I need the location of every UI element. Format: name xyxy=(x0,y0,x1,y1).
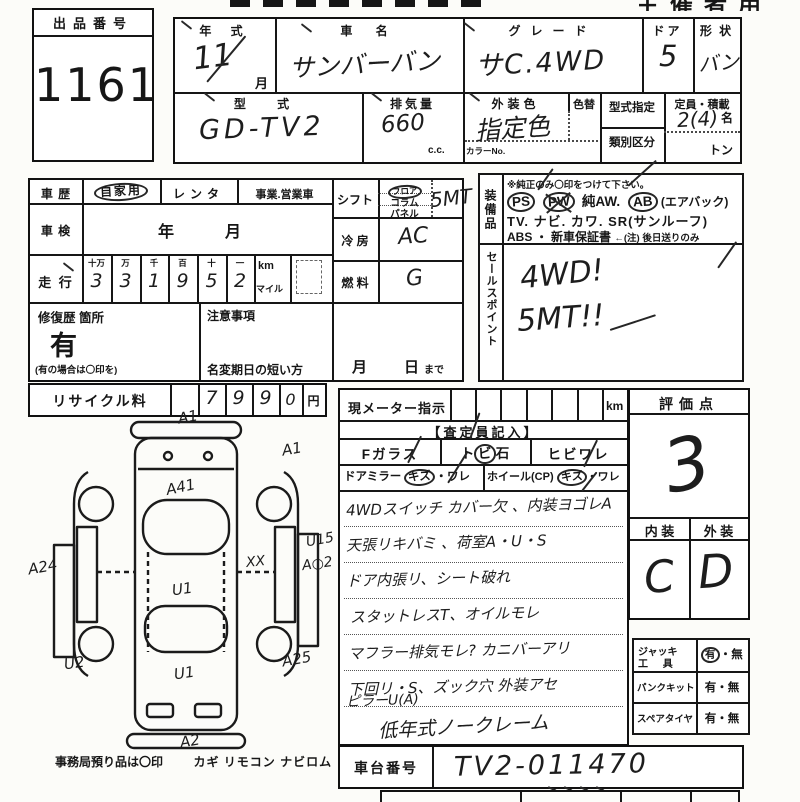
history-own: 自家用 xyxy=(82,182,160,201)
grid-line xyxy=(577,390,579,420)
wheel-label: ホイール(CP) xyxy=(487,471,554,483)
assessor-note: マフラー排気モレ? カニバーアリ xyxy=(348,637,571,664)
grid-line-dashed xyxy=(664,131,740,133)
type-designation-label: 型式指定 xyxy=(600,99,664,115)
grid-line xyxy=(340,438,627,440)
damage-code: XX xyxy=(245,553,266,571)
history-business: 事業.営業車 xyxy=(237,186,332,202)
mileage-unit-checkbox xyxy=(296,260,322,294)
load-unit: トン xyxy=(709,141,733,158)
mileage-digit-header: 十万 xyxy=(82,257,111,269)
damage-code: U1 xyxy=(171,579,194,600)
spare-yes: 有 xyxy=(705,713,717,725)
grid-line xyxy=(634,702,748,704)
grid-line xyxy=(30,254,332,256)
damage-code: A1 xyxy=(177,406,200,427)
fuel-value: G xyxy=(405,265,425,292)
grid-line xyxy=(340,490,627,492)
displacement-value: 660 xyxy=(380,110,426,139)
displacement-unit: c.c. xyxy=(428,145,445,156)
assessor-note: ピラーU(A) xyxy=(346,689,419,712)
recycle-unit: 円 xyxy=(302,392,325,409)
wheel-kizu-circled: キズ xyxy=(556,468,587,486)
shape-label: 形 状 xyxy=(693,22,740,39)
crack-label: ヒビワレ xyxy=(530,443,627,463)
separator-dot: ・ xyxy=(716,682,728,694)
color-no-label: カラーNo. xyxy=(466,145,505,157)
pen-stroke xyxy=(717,241,737,268)
grid-line xyxy=(290,254,292,302)
mileage-digit: 1 xyxy=(140,270,168,292)
fuel-label: 燃 料 xyxy=(332,274,378,291)
jack-tools-value: 有・無 xyxy=(696,646,748,663)
grid-line xyxy=(630,413,748,415)
caution-made: まで xyxy=(424,361,444,376)
partial-table-edge xyxy=(380,790,740,802)
meter-unit: km xyxy=(606,399,623,413)
damage-code: A2 xyxy=(179,730,202,751)
grid-line xyxy=(432,747,434,787)
grid-line xyxy=(620,792,622,802)
office-items-text: カギ リモコン ナビロム xyxy=(193,755,332,769)
auction-sheet: 主催者用 出品番号 1161 年 式 車 名 グレード ドア 形 状 11 月 … xyxy=(0,0,800,800)
history-label: 車 歴 xyxy=(30,185,82,202)
mirror-kizu-circled: キズ xyxy=(404,468,436,487)
note-rule xyxy=(344,634,623,635)
capacity-unit: 名 xyxy=(721,109,733,126)
grid-line xyxy=(602,390,604,420)
grid-line xyxy=(600,127,664,129)
exhibit-number: 1161 xyxy=(34,58,152,112)
interior-label: 内 装 xyxy=(630,521,689,540)
month-suffix: 月 xyxy=(255,73,268,92)
equipment-ab-circled: AB xyxy=(627,191,657,212)
stone-chip-cell: トビ石 xyxy=(440,442,530,464)
grid-line xyxy=(30,302,462,304)
grade-point-value: 3 xyxy=(656,418,718,510)
caution-month: 月 xyxy=(352,356,367,377)
wheel-ware: ワレ xyxy=(598,471,620,483)
organizer-label: 主催者用 xyxy=(636,0,800,11)
equipment-pw-circled-crossed: PW xyxy=(542,191,575,212)
equipment-ps-circled: PS xyxy=(507,191,536,212)
car-name-value: サンバーバン xyxy=(288,41,441,85)
spare-no: 無 xyxy=(728,713,740,725)
door-mirror-label: ドアミラー xyxy=(344,471,401,483)
shaken-year: 年 xyxy=(158,218,174,242)
aircon-value: AC xyxy=(397,223,429,250)
shaken-label: 車 検 xyxy=(30,222,82,239)
grid-line xyxy=(690,792,692,802)
shift-value: 5MT xyxy=(429,184,473,212)
mileage-digit-header: 千 xyxy=(140,257,168,269)
ishi-text: 石 xyxy=(496,446,510,461)
mileage-label: 走 行 xyxy=(30,272,82,291)
bi-circled: ビ xyxy=(474,443,496,464)
mileage-digit: 5 xyxy=(197,270,226,292)
grid-line xyxy=(500,390,502,420)
caution-day: 日 xyxy=(404,356,419,377)
mileage-digit-header: 万 xyxy=(111,257,140,269)
class-division-label: 類別区分 xyxy=(600,134,664,150)
equipment-box: 装備品 ※純正のみ〇印をつけて下さい。 PS PW 純AW. AB (エアバック… xyxy=(478,173,744,247)
assessor-note: 低年式ノークレーム xyxy=(377,708,549,744)
clipped-title-fragments xyxy=(230,0,492,7)
recycle-digit: 9 xyxy=(252,387,279,409)
separator-dot: ・ xyxy=(716,713,728,725)
grid-line-dashed xyxy=(568,111,570,140)
jack-yes-circled: 有 xyxy=(701,647,720,664)
tools-box: ジャッキ 工 具 有・無 パンクキット 有・無 スペアタイヤ 有・無 xyxy=(632,638,750,735)
history-own-circled: 自家用 xyxy=(94,182,149,203)
recycle-digit: 7 xyxy=(198,387,225,409)
grid-line xyxy=(450,390,452,420)
meter-label: 現メーター指示 xyxy=(348,398,446,417)
equipment-ab-note: (エアバック) xyxy=(661,195,729,209)
repaint-label: 色替 xyxy=(568,96,600,112)
grade-value: サC.4WD xyxy=(474,38,607,84)
grid-line xyxy=(502,245,504,380)
damage-code: U15 xyxy=(305,530,335,551)
jack-tools-label-2: 工 具 xyxy=(638,655,679,670)
caution-label: 注意事項 xyxy=(207,307,255,324)
equipment-label: 装備品 xyxy=(482,179,499,241)
assessor-note: 天張リキバミ 、荷室A・U・S xyxy=(346,529,547,555)
sales-point-box: セールスポイント 4WD! 5MT!! xyxy=(478,243,744,382)
damage-code: U1 xyxy=(173,663,196,684)
puncture-no: 無 xyxy=(728,682,740,694)
exhibit-number-box: 出品番号 1161 xyxy=(32,8,154,162)
exterior-label: 外 装 xyxy=(689,521,748,540)
grid-line xyxy=(551,390,553,420)
caution-line: 名変期日の短い方 xyxy=(207,361,303,378)
grid-line xyxy=(30,203,332,205)
mileage-digit-header: 百 xyxy=(168,257,197,269)
mileage-digit-header: 十 xyxy=(197,257,226,269)
grid-line xyxy=(199,302,201,380)
door-label: ドア xyxy=(642,22,693,39)
repair-note: (有の場合は〇印を) xyxy=(35,362,117,376)
color-value: 指定色 xyxy=(474,106,551,147)
pen-stroke xyxy=(610,314,656,331)
history-rental: レンタ xyxy=(160,185,237,202)
grid-line xyxy=(738,792,740,802)
equipment-line1: PS PW 純AW. AB (エアバック) xyxy=(507,190,728,212)
mileage-digit: 9 xyxy=(168,270,197,292)
jack-no: 無 xyxy=(731,649,743,661)
note-rule xyxy=(344,562,623,563)
grade-label: グレード xyxy=(463,22,642,39)
note-rule xyxy=(344,526,623,527)
front-glass-label: Fガラス xyxy=(340,443,440,463)
model-value: GD-TV2 xyxy=(198,111,325,146)
grid-line xyxy=(520,792,522,802)
recycle-digit: 0 xyxy=(279,390,302,409)
equipment-abs: ABS ・ 新車保証書 xyxy=(507,230,611,244)
shaken-month: 月 xyxy=(225,218,241,242)
grade-point-label: 評価点 xyxy=(630,394,748,414)
shape-value: バン xyxy=(697,45,740,77)
note-rule xyxy=(344,598,623,599)
grade-point-box: 評価点 3 内 装 外 装 C D xyxy=(628,388,750,620)
office-note-text: 事務局預り品は〇印 xyxy=(55,755,163,769)
assessor-note: 4WDスイッチ カバー欠 、内装ヨゴレA xyxy=(346,493,612,521)
exhibit-number-label: 出品番号 xyxy=(34,13,152,37)
grid-line xyxy=(483,464,485,490)
sales-point-line2: 5MT!! xyxy=(516,298,606,339)
assessor-box: 現メーター指示 km 【査定員記入】 Fガラス トビ石 ヒビワレ ドアミラー キ… xyxy=(338,388,629,746)
grid-line xyxy=(380,792,382,802)
assessor-note: ドア内張リ、シート破れ xyxy=(346,566,511,591)
history-mileage-table: 車 歴 自家用 レンタ 事業.営業車 車 検 年 月 走 行 十万 万 千 百 … xyxy=(28,178,464,382)
exterior-grade: D xyxy=(696,543,735,599)
damage-code: A1 xyxy=(281,438,304,459)
mileage-digit: 3 xyxy=(111,270,140,292)
grid-line xyxy=(634,671,748,673)
shift-option-panel: パネル xyxy=(378,206,431,220)
mileage-digit: 3 xyxy=(82,270,111,292)
mileage-digit-header: 一 xyxy=(226,257,254,269)
shift-label: シフト xyxy=(332,191,378,208)
car-damage-diagram: A1 A1 A41 A24 U1 XX U15 A○2 U2 U1 A25 A2 xyxy=(50,412,330,752)
model-label: 型 式 xyxy=(175,95,362,112)
separator-dot: ・ xyxy=(435,471,447,483)
puncture-kit-label: パンクキット xyxy=(637,680,694,694)
sales-point-line1: 4WD! xyxy=(518,253,605,297)
recycle-fee-label: リサイクル料 xyxy=(30,391,170,411)
assessor-note: スタットレスT、オイルモレ xyxy=(350,602,540,628)
recycle-digit: 9 xyxy=(225,387,252,409)
equipment-aw: 純AW. xyxy=(582,194,620,209)
puncture-yes: 有 xyxy=(705,682,717,694)
organizer-label-clipped: 主催者用 xyxy=(636,0,800,11)
chassis-number-value: TV2-011470 xyxy=(454,748,649,782)
repair-value: 有 xyxy=(50,324,77,363)
interior-grade: C xyxy=(641,551,677,605)
sales-point-label: セールスポイント xyxy=(483,251,499,377)
mileage-mile-unit: マイル xyxy=(256,282,283,295)
door-value: 5 xyxy=(659,39,677,73)
grid-line xyxy=(170,385,172,415)
separator-dot: ・ xyxy=(720,649,732,661)
spare-tire-label: スペアタイヤ xyxy=(637,711,693,725)
damage-code: U2 xyxy=(63,653,86,674)
chassis-number-row: 車台番号 TV2-011470 xyxy=(338,745,744,789)
grid-line xyxy=(332,260,462,262)
mileage-digit: 2 xyxy=(226,270,254,292)
office-deposit-note: 事務局預り品は〇印 カギ リモコン ナビロム xyxy=(55,753,332,771)
grid-line xyxy=(502,175,504,245)
grid-line xyxy=(175,92,740,94)
puncture-kit-value: 有・無 xyxy=(696,679,748,695)
spare-tire-value: 有・無 xyxy=(696,710,748,726)
grid-line xyxy=(526,390,528,420)
capacity-value: 2(4) xyxy=(676,106,718,132)
chassis-number-label: 車台番号 xyxy=(340,758,432,778)
note-rule xyxy=(344,670,623,671)
aircon-label: 冷 房 xyxy=(332,232,378,249)
wheel-cell: ホイール(CP) キズ・ワレ xyxy=(487,468,620,486)
grid-line xyxy=(630,539,748,541)
mileage-km-unit: km xyxy=(258,260,274,272)
vehicle-info-table: 年 式 車 名 グレード ドア 形 状 11 月 サンバーバン サC.4WD 5… xyxy=(173,17,742,164)
